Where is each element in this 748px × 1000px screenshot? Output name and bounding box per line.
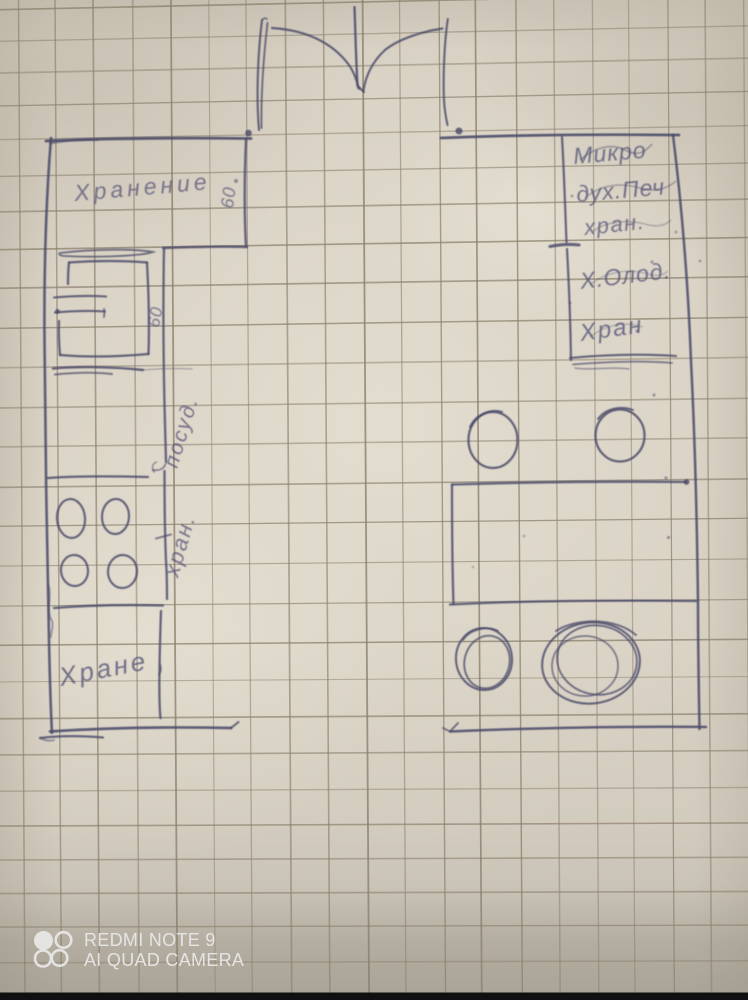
svg-text:AI QUAD CAMERA: AI QUAD CAMERA (84, 950, 244, 970)
svg-text:REDMI NOTE 9: REDMI NOTE 9 (84, 930, 216, 950)
svg-text:60: 60 (217, 185, 240, 209)
